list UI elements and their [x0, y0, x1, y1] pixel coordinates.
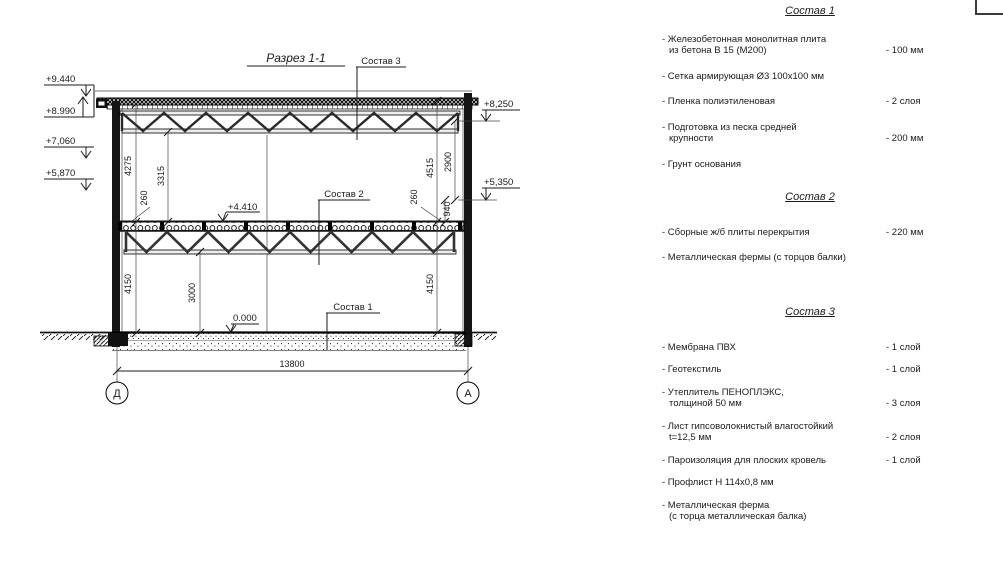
elevation-text: 0.000: [233, 313, 257, 324]
spec-item-value: - 1 слой: [886, 455, 958, 467]
spec-item-line: - Железобетонная монолитная плита: [662, 34, 886, 46]
spec-item-value: - 2 слоя: [886, 96, 958, 108]
spec-item-value: - 2 слоя: [886, 432, 958, 444]
spec-item-name: - Пароизоляция для плоских кровель: [662, 455, 886, 467]
spec-item: - Мембрана ПВХ- 1 слой: [662, 342, 958, 354]
elevation-4410: +4.410: [218, 202, 260, 221]
elevation-text: +4.410: [228, 202, 257, 213]
spec-item: - Подготовка из песка среднейкрупности- …: [662, 122, 958, 145]
spec-item-line: (с торца металлическая балка): [662, 511, 886, 523]
elevation-text: +5,870: [46, 168, 75, 179]
sheet-frame-corner: [975, 0, 1003, 15]
spec-item: - Грунт основания: [662, 159, 958, 171]
spec-item-name: - Утеплитель ПЕНОПЛЭКС,толщиной 50 мм: [662, 387, 886, 410]
dim-text: 260: [409, 189, 419, 204]
dim-text: 3315: [156, 166, 166, 186]
spec-item-line: - Мембрана ПВХ: [662, 342, 886, 354]
spec-item-value: - 100 мм: [886, 45, 958, 57]
spec-item-line: - Сборные ж/б плиты перекрытия: [662, 227, 886, 239]
elevation-5350: +5,350: [481, 177, 520, 200]
spec-item-value: - 3 слоя: [886, 398, 958, 410]
floor-truss: [124, 232, 456, 254]
spec-item: - Профлист Н 114х0,8 мм: [662, 477, 958, 489]
spec-item-name: - Пленка полиэтиленовая: [662, 96, 886, 108]
spec-section-1: Состав 1- Железобетонная монолитная плит…: [662, 6, 958, 184]
spec-item-name: - Подготовка из песка среднейкрупности: [662, 122, 886, 145]
spec-item-line: - Пленка полиэтиленовая: [662, 96, 886, 108]
dim-text: 4150: [425, 274, 435, 294]
spec-item-value: - 1 слой: [886, 364, 958, 376]
spec-item-name: - Грунт основания: [662, 159, 886, 171]
axis-letter-left: Д: [113, 388, 121, 400]
drawing-title: Разрез 1-1: [247, 51, 345, 66]
spec-section-title: Состав 1: [662, 6, 958, 18]
roof-slab: [96, 98, 478, 109]
foundation-right: [455, 334, 472, 346]
spec-section-2: Состав 2- Сборные ж/б плиты перекрытия- …: [662, 192, 958, 278]
spec-item-line: - Профлист Н 114х0,8 мм: [662, 477, 886, 489]
ground-floor: [40, 333, 497, 351]
spec-item-name: - Сетка армирующая Ø3 100х100 мм: [662, 71, 886, 83]
spec-item-line: - Металлическая фермы (с торцов балки): [662, 252, 886, 264]
elevation-5870: +5,870: [44, 168, 94, 190]
spec-item: - Сборные ж/б плиты перекрытия- 220 мм: [662, 227, 958, 239]
spec-section-title: Состав 2: [662, 192, 958, 204]
dim-text: 260: [139, 190, 149, 205]
drawing-sheet: { "drawing": { "title": "Разрез 1-1", "a…: [0, 0, 1003, 584]
elevation-8990: +8.990: [44, 97, 94, 117]
spec-item-line: - Подготовка из песка средней: [662, 122, 886, 134]
spec-item-value: - 220 мм: [886, 227, 958, 239]
right-wall: [464, 93, 472, 347]
spec-panels: Состав 1- Железобетонная монолитная плит…: [662, 0, 958, 584]
dimension-13800: 13800: [113, 359, 472, 375]
spec-item: - Лист гипсоволокнистый влагостойкийt=12…: [662, 421, 958, 444]
spec-item-name: - Мембрана ПВХ: [662, 342, 886, 354]
dim-text: 3000: [187, 283, 197, 303]
spec-item-name: - Геотекстиль: [662, 364, 886, 376]
spec-item-name: - Металлическая фермы (с торцов балки): [662, 252, 886, 264]
elevation-text: +8.990: [46, 106, 75, 117]
dim-text: 4150: [123, 274, 133, 294]
spec-item-name: - Железобетонная монолитная плитаиз бето…: [662, 34, 886, 57]
spec-item: - Металлическая фермы (с торцов балки): [662, 252, 958, 264]
elevation-text: +5,350: [484, 177, 513, 188]
spec-item: - Утеплитель ПЕНОПЛЭКС,толщиной 50 мм- 3…: [662, 387, 958, 410]
dim-text: 4515: [425, 158, 435, 178]
elevation-text: +9.440: [46, 74, 75, 85]
dim-text: 13800: [279, 359, 304, 369]
spec-section-title: Состав 3: [662, 307, 958, 319]
elevation-8250: +8,250: [481, 99, 520, 121]
spec-section-3: Состав 3- Мембрана ПВХ- 1 слой- Геотекст…: [662, 307, 958, 534]
spec-item-name: - Сборные ж/б плиты перекрытия: [662, 227, 886, 239]
spec-item-name: - Профлист Н 114х0,8 мм: [662, 477, 886, 489]
spec-item-line: - Пароизоляция для плоских кровель: [662, 455, 886, 467]
label-text: Состав 3: [361, 56, 400, 67]
spec-item-name: - Металлическая ферма(с торца металличес…: [662, 500, 886, 523]
spec-item: - Геотекстиль- 1 слой: [662, 364, 958, 376]
section-drawing: Разрез 1-1: [0, 0, 640, 584]
label-text: Состав 2: [324, 189, 363, 200]
dim-text: 2900: [443, 152, 453, 172]
spec-item-line: толщиной 50 мм: [662, 398, 886, 410]
spec-item-line: - Грунт основания: [662, 159, 886, 171]
spec-item-line: - Геотекстиль: [662, 364, 886, 376]
elevation-7060: +7,060: [44, 136, 94, 158]
spec-item: - Пароизоляция для плоских кровель- 1 сл…: [662, 455, 958, 467]
spec-item: - Металлическая ферма(с торца металличес…: [662, 500, 958, 523]
spec-item-value: - 1 слой: [886, 342, 958, 354]
spec-item-line: из бетона В 15 (М200): [662, 45, 886, 57]
spec-item-line: - Металлическая ферма: [662, 500, 886, 512]
spec-item-line: - Утеплитель ПЕНОПЛЭКС,: [662, 387, 886, 399]
elevation-0000: 0.000: [226, 313, 259, 332]
spec-item-line: t=12,5 мм: [662, 432, 886, 444]
spec-item: - Пленка полиэтиленовая- 2 слоя: [662, 96, 958, 108]
elevation-text: +7,060: [46, 136, 75, 147]
dim-text: 940: [442, 201, 452, 216]
grid-axes: Д А: [106, 347, 479, 404]
dim-text: 4275: [123, 156, 133, 176]
spec-item-line: - Лист гипсоволокнистый влагостойкий: [662, 421, 886, 433]
label-text: Состав 1: [333, 302, 372, 313]
floor-slab: [118, 222, 466, 232]
spec-item: - Сетка армирующая Ø3 100х100 мм: [662, 71, 958, 83]
section-title-text: Разрез 1-1: [266, 51, 325, 65]
spec-item: - Железобетонная монолитная плитаиз бето…: [662, 34, 958, 57]
elevation-text: +8,250: [484, 99, 513, 110]
spec-item-name: - Лист гипсоволокнистый влагостойкийt=12…: [662, 421, 886, 444]
spec-item-line: крупности: [662, 133, 886, 145]
spec-item-value: - 200 мм: [886, 133, 958, 145]
spec-item-line: - Сетка армирующая Ø3 100х100 мм: [662, 71, 886, 83]
axis-letter-right: А: [464, 388, 472, 400]
